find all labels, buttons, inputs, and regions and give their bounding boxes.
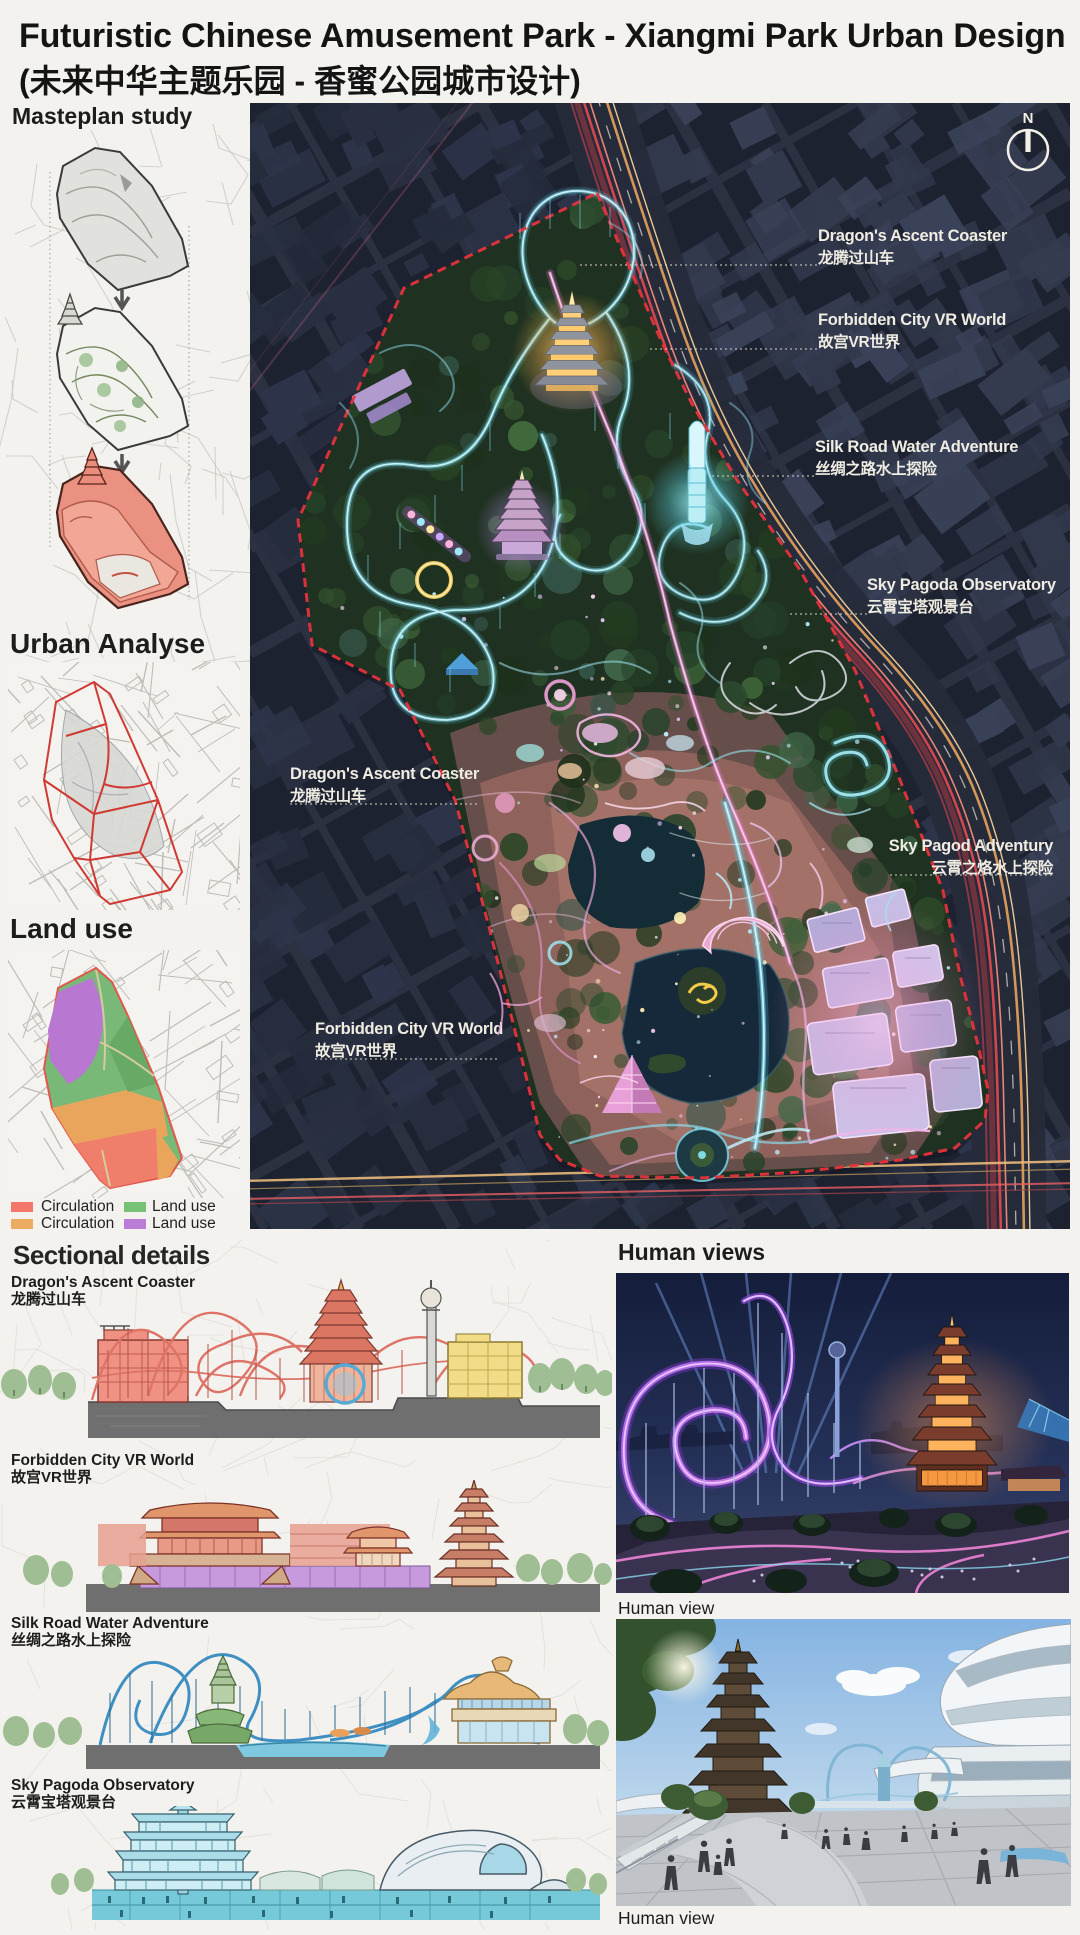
- svg-text:Sky Pagoda Observatory: Sky Pagoda Observatory: [867, 576, 1057, 594]
- svg-text:云霄宝塔观景台: 云霄宝塔观景台: [867, 597, 973, 616]
- svg-text:云霄之烙水上探险: 云霄之烙水上探险: [931, 858, 1053, 877]
- svg-text:Forbidden City VR World: Forbidden City VR World: [818, 311, 1006, 329]
- svg-text:Silk Road Water Adventure: Silk Road Water Adventure: [815, 438, 1018, 456]
- svg-text:Sky Pagod Adventury: Sky Pagod Adventury: [889, 837, 1054, 855]
- svg-text:Forbidden City VR World: Forbidden City VR World: [315, 1020, 503, 1038]
- svg-text:丝绸之路水上探险: 丝绸之路水上探险: [815, 459, 937, 478]
- svg-text:故宫VR世界: 故宫VR世界: [818, 332, 901, 351]
- svg-text:龙腾过山车: 龙腾过山车: [289, 786, 366, 805]
- svg-text:龙腾过山车: 龙腾过山车: [817, 248, 894, 267]
- svg-text:Dragon's Ascent Coaster: Dragon's Ascent Coaster: [290, 765, 480, 783]
- svg-text:N: N: [1023, 110, 1034, 127]
- svg-text:故宫VR世界: 故宫VR世界: [315, 1041, 398, 1060]
- svg-text:Dragon's Ascent Coaster: Dragon's Ascent Coaster: [818, 227, 1008, 245]
